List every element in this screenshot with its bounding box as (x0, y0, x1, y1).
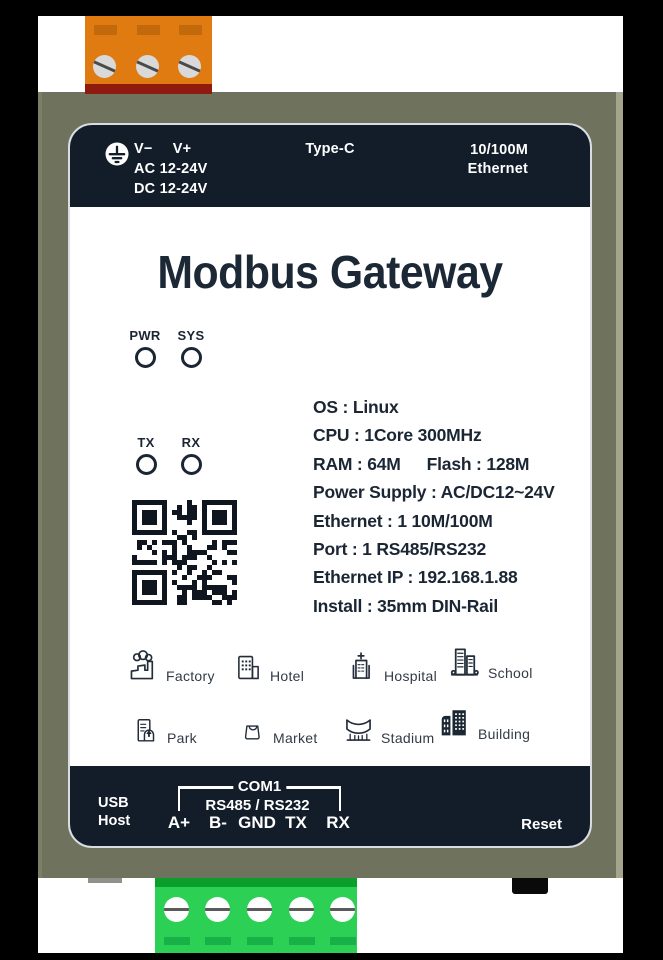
wire-slot (205, 937, 231, 945)
rx-led: RX (161, 435, 221, 475)
wire-slot (330, 937, 356, 945)
wire-slot (137, 25, 160, 35)
terminal-screw (178, 55, 201, 78)
park-icon (130, 714, 163, 747)
terminal-screw (164, 897, 189, 922)
hospital-icon (343, 648, 380, 685)
terminal-label-tx: TX (285, 813, 307, 833)
terminal-label-rx: RX (326, 813, 350, 833)
terminal-screw (136, 55, 159, 78)
spec-install: Install : 35mm DIN-Rail (313, 592, 555, 620)
label-main-area: Modbus Gateway PWR SYS TX RX OS : Linux … (70, 207, 590, 766)
wire-slot (164, 937, 190, 945)
app-stadium: Stadium (340, 705, 434, 747)
app-label: School (488, 665, 533, 681)
sys-led-lamp (181, 347, 202, 368)
terminal-screw (247, 897, 272, 922)
sys-led-label: SYS (178, 328, 205, 343)
spec-memory: RAM : 64M Flash : 128M (313, 450, 555, 478)
spec-port: Port : 1 RS485/RS232 (313, 535, 555, 563)
terminal-cap (155, 878, 357, 887)
app-label: Factory (166, 668, 215, 684)
ac-rating-label: AC 12-24V (134, 159, 208, 179)
type-c-port-label: Type-C (305, 141, 354, 157)
pwr-led-lamp (135, 347, 156, 368)
bottom-io-panel: USB Host COM1 RS485 / RS232 A+ B- GND TX… (70, 766, 590, 846)
com1-label: COM1 (233, 778, 286, 795)
qr-code (132, 500, 237, 605)
app-label: Stadium (381, 730, 434, 746)
spec-ethernet: Ethernet : 1 10M/100M (313, 507, 555, 535)
usb-label-line1: USB (98, 794, 130, 812)
power-input-labels: V− V+ AC 12-24V DC 12-24V (134, 139, 208, 199)
dc-rating-label: DC 12-24V (134, 179, 208, 199)
usb-host-label: USB Host (98, 794, 130, 830)
stadium-icon (340, 710, 377, 747)
wire-slot (94, 25, 117, 35)
terminal-screw (93, 55, 116, 78)
rx-led-lamp (181, 454, 202, 475)
spec-ram: RAM : 64M (313, 450, 401, 478)
terminal-screw (289, 897, 314, 922)
wire-slot (247, 937, 273, 945)
terminal-label-b-minus: B- (209, 813, 227, 833)
din-rail-clip (512, 878, 548, 894)
ethernet-port-label: 10/100M Ethernet (468, 141, 528, 179)
app-building: Building (433, 701, 530, 743)
app-hotel: Hotel (231, 643, 304, 685)
product-title: Modbus Gateway (88, 245, 572, 299)
v-plus-label: V+ (173, 139, 192, 159)
app-label: Building (478, 726, 530, 742)
terminal-label-gnd: GND (238, 813, 276, 833)
reset-button-label: Reset (521, 816, 562, 833)
spec-flash: Flash : 128M (427, 450, 530, 478)
app-label: Hotel (270, 668, 304, 684)
rx-led-label: RX (182, 435, 201, 450)
terminal-screw (205, 897, 230, 922)
terminal-label-a-plus: A+ (168, 813, 190, 833)
factory-icon (125, 648, 162, 685)
app-park: Park (130, 705, 197, 747)
ethernet-word-label: Ethernet (468, 160, 528, 179)
front-label: V− V+ AC 12-24V DC 12-24V Type-C 10/100M… (68, 123, 592, 848)
tx-led-label: TX (137, 435, 154, 450)
app-factory: Factory (125, 643, 215, 685)
power-terminal-block (85, 16, 212, 94)
pwr-led-label: PWR (129, 328, 160, 343)
hotel-icon (231, 650, 266, 685)
product-photo: V− V+ AC 12-24V DC 12-24V Type-C 10/100M… (0, 0, 663, 960)
wire-slot (179, 25, 202, 35)
spec-ip: Ethernet IP : 192.168.1.88 (313, 563, 555, 591)
app-hospital: Hospital (343, 643, 437, 685)
terminal-screw (330, 897, 355, 922)
protective-earth-icon (104, 141, 130, 167)
app-school: School (445, 640, 533, 682)
app-label: Park (167, 730, 197, 746)
tx-led-lamp (136, 454, 157, 475)
usb-label-line2: Host (98, 812, 130, 830)
spec-power: Power Supply : AC/DC12~24V (313, 478, 555, 506)
school-icon (445, 643, 484, 682)
sys-led: SYS (161, 328, 221, 368)
spec-list: OS : Linux CPU : 1Core 300MHz RAM : 64M … (313, 393, 555, 620)
v-minus-label: V− (134, 139, 153, 159)
spec-os: OS : Linux (313, 393, 555, 421)
terminal-base (85, 84, 212, 94)
spec-cpu: CPU : 1Core 300MHz (313, 421, 555, 449)
app-market: Market (238, 705, 318, 747)
app-label: Hospital (384, 668, 437, 684)
serial-modes-label: RS485 / RS232 (178, 797, 337, 814)
wire-slot (289, 937, 315, 945)
building-icon (433, 702, 474, 743)
serial-terminal-block (155, 878, 357, 953)
app-label: Market (273, 730, 318, 746)
top-io-panel: V− V+ AC 12-24V DC 12-24V Type-C 10/100M… (70, 125, 590, 207)
ethernet-speed-label: 10/100M (468, 141, 528, 160)
market-icon (238, 716, 269, 747)
din-rail-tab (88, 878, 122, 883)
